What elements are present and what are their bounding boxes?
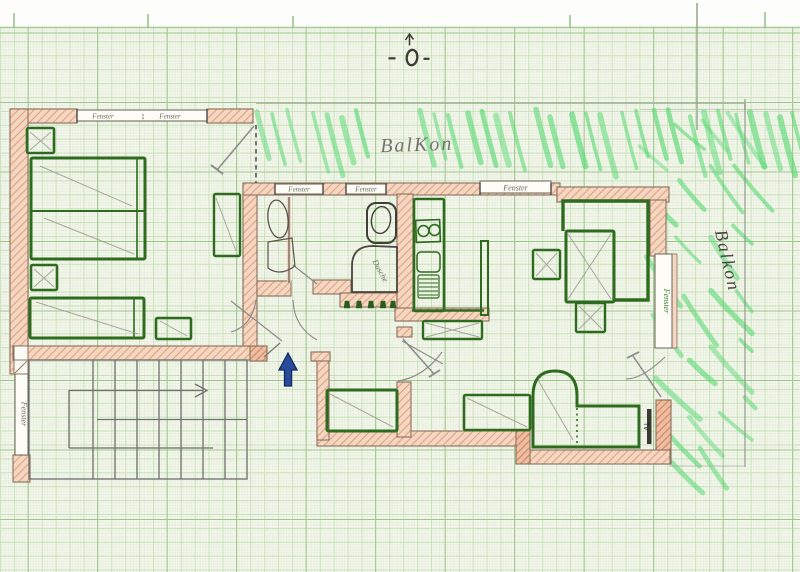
svg-text:Fenster: Fenster [158, 113, 181, 121]
svg-text:Fenster: Fenster [20, 401, 29, 427]
svg-text:Fenster: Fenster [662, 288, 671, 314]
svg-text:BalKon: BalKon [380, 133, 454, 158]
svg-text:↕: ↕ [141, 111, 146, 121]
svg-text:Fenster: Fenster [502, 184, 528, 193]
svg-text:Fenster: Fenster [91, 113, 114, 121]
svg-text:Fenster: Fenster [354, 186, 377, 194]
svg-text:Fenster: Fenster [287, 186, 310, 194]
svg-text:Tv: Tv [642, 422, 651, 431]
